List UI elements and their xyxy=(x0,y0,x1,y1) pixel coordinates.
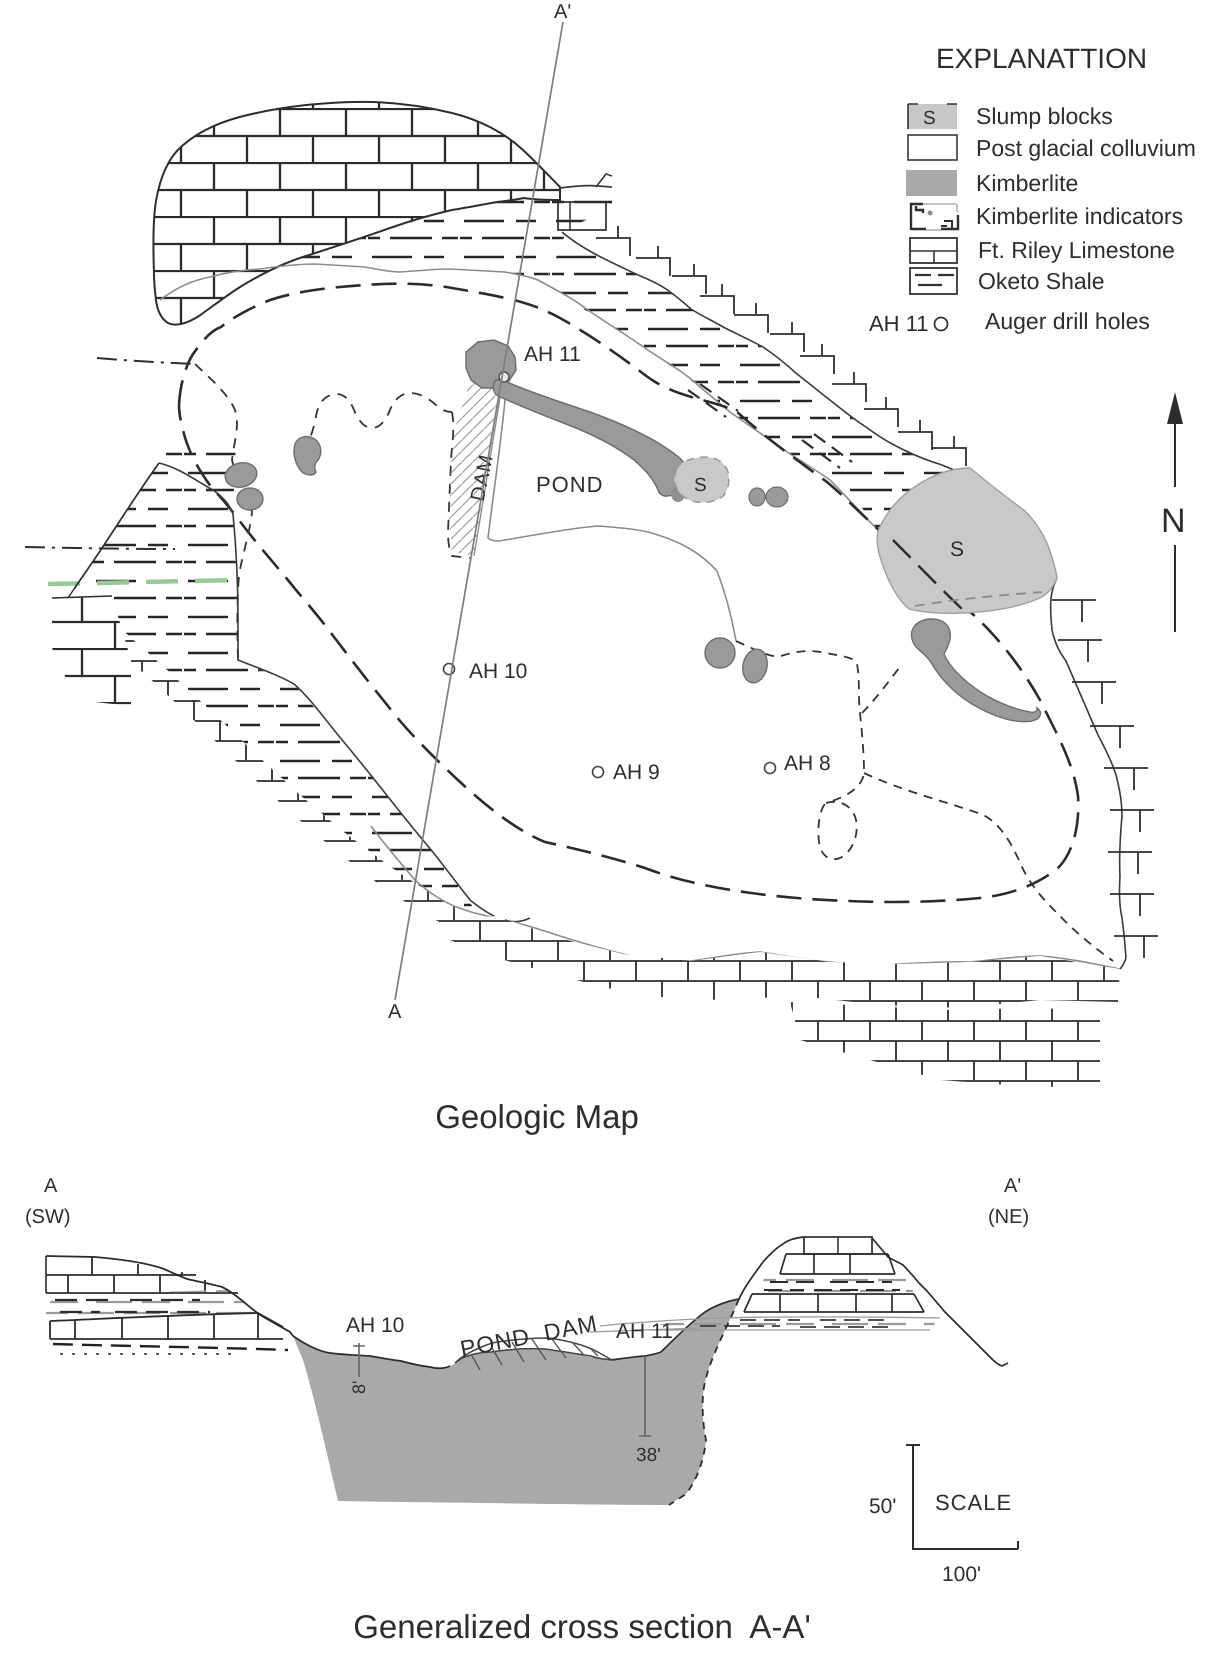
svg-text:AH 9: AH 9 xyxy=(613,761,660,784)
svg-text:EXPLANATTION: EXPLANATTION xyxy=(936,43,1147,74)
svg-text:POND: POND xyxy=(536,472,604,497)
svg-text:S: S xyxy=(694,475,707,496)
svg-text:SCALE: SCALE xyxy=(935,1490,1012,1515)
svg-text:100': 100' xyxy=(942,1563,981,1586)
svg-text:(SW): (SW) xyxy=(25,1206,71,1228)
svg-text:Kimberlite: Kimberlite xyxy=(976,170,1078,196)
svg-text:38': 38' xyxy=(636,1445,661,1466)
svg-text:AH 10: AH 10 xyxy=(469,660,527,683)
svg-text:Auger drill holes: Auger drill holes xyxy=(985,308,1150,334)
svg-text:S: S xyxy=(950,538,964,561)
svg-text:(NE): (NE) xyxy=(988,1206,1029,1228)
svg-text:A: A xyxy=(44,1175,58,1197)
svg-text:AH 11: AH 11 xyxy=(869,311,929,336)
svg-text:A: A xyxy=(388,1001,402,1023)
svg-text:Post glacial colluvium: Post glacial colluvium xyxy=(976,135,1196,161)
svg-text:8': 8' xyxy=(349,1381,369,1394)
svg-text:N: N xyxy=(1161,502,1186,540)
svg-text:50': 50' xyxy=(869,1495,896,1518)
svg-text:Oketo Shale: Oketo Shale xyxy=(978,268,1105,294)
svg-text:Geologic Map: Geologic Map xyxy=(435,1098,639,1135)
svg-text:Slump blocks: Slump blocks xyxy=(976,103,1113,129)
svg-text:A': A' xyxy=(554,1,571,23)
svg-text:AH 8: AH 8 xyxy=(784,752,831,775)
svg-text:AH 11: AH 11 xyxy=(524,343,581,366)
svg-text:Kimberlite indicators: Kimberlite indicators xyxy=(976,203,1183,229)
svg-text:AH 10: AH 10 xyxy=(346,1314,404,1337)
svg-text:Generalized cross section A-A: Generalized cross section A-A' xyxy=(353,1608,811,1645)
svg-text:Ft. Riley Limestone: Ft. Riley Limestone xyxy=(978,237,1175,263)
svg-text:AH 11: AH 11 xyxy=(616,1320,673,1343)
svg-text:S: S xyxy=(923,108,936,129)
svg-text:A': A' xyxy=(1004,1175,1021,1197)
